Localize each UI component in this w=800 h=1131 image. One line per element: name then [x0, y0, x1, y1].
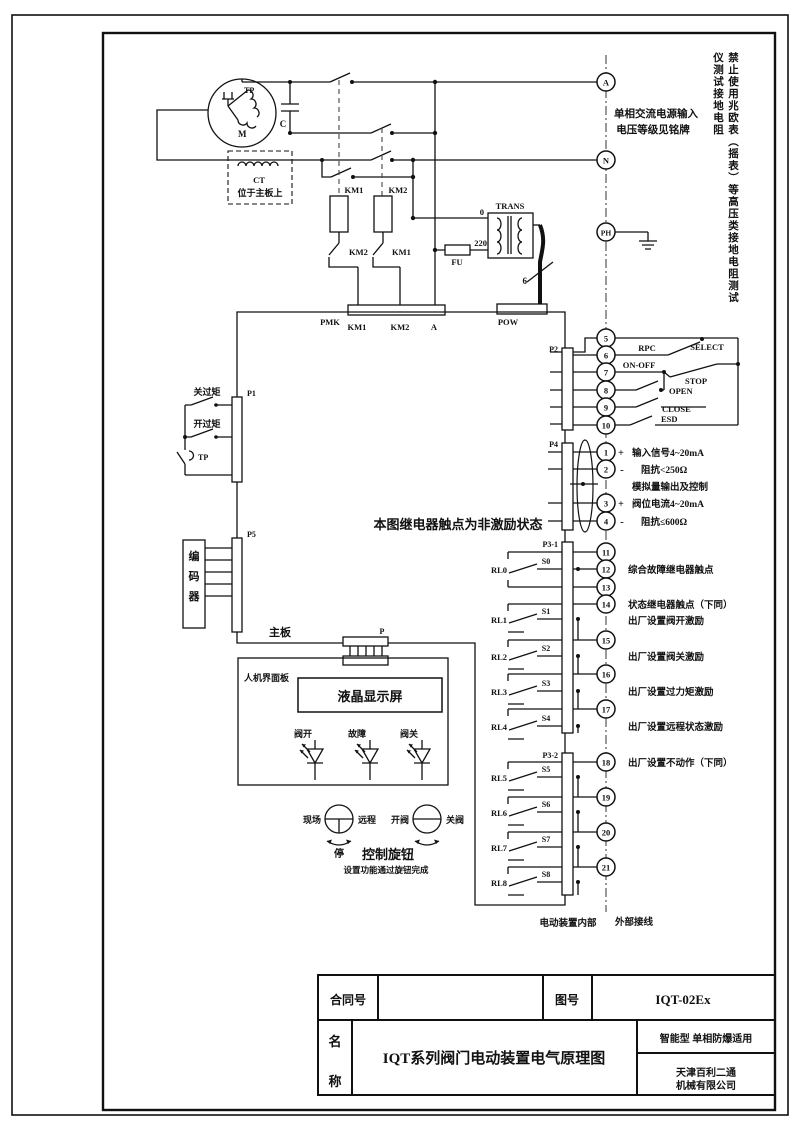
switch-s4: S4 — [542, 714, 550, 723]
p31-section: P3-1 RL0 S0 RL1 S1 RL2 S2 RL3 S3 RL4 S4 … — [491, 540, 733, 739]
note-remote-exc: 出厂设置远程状态激励 — [628, 721, 724, 733]
analog-note-5: 阻抗≤600Ω — [641, 516, 687, 528]
pmk-connector: PMK KM1 KM2 A — [320, 305, 445, 332]
led-close-label: 阀关 — [400, 728, 418, 739]
close-label: CLOSE — [662, 404, 691, 414]
zone-internal-label: 电动装置内部 — [539, 917, 597, 929]
minus-sign-1: - — [620, 464, 624, 476]
p2-label: P2 — [549, 345, 558, 354]
km2-interlock-label: KM1 — [392, 247, 411, 257]
analog-note-4: 阀位电流4~20mA — [632, 498, 704, 510]
pmk-pin-km1: KM1 — [348, 322, 367, 332]
analog-note-3: 模拟量输出及控制 — [632, 481, 709, 493]
relay-rl2: RL2 — [491, 652, 507, 662]
transformer-label: TRANS — [496, 201, 525, 211]
terminal-20: 20 — [602, 828, 611, 838]
cable-count-label: 6 — [523, 276, 528, 286]
p4-terminal-3: 3 — [604, 499, 608, 509]
knob2-right-label: 关阀 — [446, 814, 464, 825]
fuse-label: FU — [451, 257, 462, 267]
company-line1: 天津百利二通 — [676, 1066, 736, 1079]
p2-terminal-5: 5 — [604, 334, 608, 344]
relay-state-note: 本图继电器触点为非激励状态 — [373, 517, 542, 532]
outer-border — [12, 15, 788, 1115]
terminal-21: 21 — [602, 863, 611, 873]
power-note-line1: 单相交流电源输入 — [614, 107, 698, 120]
supply-terminals: A N PH 单相交流电源输入 电压等级见铭牌 — [597, 73, 698, 249]
hmi-panel-label: 人机界面板 — [243, 672, 290, 683]
note-no-action: 出厂设置不动作（下同） — [628, 757, 733, 769]
terminal-17: 17 — [602, 705, 611, 715]
encoder: 编 码 器 P5 — [183, 530, 256, 632]
p4-label: P4 — [549, 440, 558, 449]
switch-s2: S2 — [542, 644, 550, 653]
contactor-linkage-lines — [339, 80, 382, 196]
p1-label: P1 — [247, 389, 256, 398]
knob1-left-label: 现场 — [303, 814, 321, 825]
p2-terminal-10: 10 — [602, 421, 611, 431]
control-knobs: 现场 远程 停 开阀 关阀 控制旋钮 设置功能通过旋钮完成 — [303, 805, 464, 875]
p-connector: P — [343, 627, 388, 665]
note-status: 状态继电器触点（下同） — [628, 599, 733, 611]
note-fault: 综合故障继电器触点 — [628, 564, 714, 576]
p2-terminal-6: 6 — [604, 351, 608, 361]
grounding-warning-note: 禁止使用兆欧表（摇表）等高压类接地电阻测试仪测试接地电阻 — [710, 52, 740, 312]
knob2-left-label: 开阀 — [391, 814, 409, 825]
minus-sign-2: - — [620, 516, 624, 528]
drawing-no-value: IQT-02Ex — [655, 992, 711, 1007]
name-label-char1: 名 — [328, 1034, 341, 1049]
name-label-char2: 称 — [328, 1074, 341, 1089]
switch-s0: S0 — [542, 557, 550, 566]
fuse: FU — [435, 245, 488, 267]
company-line2: 机械有限公司 — [676, 1079, 736, 1092]
p2-terminal-8: 8 — [604, 386, 608, 396]
knob1-right-label: 远程 — [358, 814, 376, 825]
encoder-char-1: 编 — [189, 549, 200, 563]
terminal-13: 13 — [602, 583, 611, 593]
plus-sign-2: + — [618, 499, 624, 510]
schematic-drawing: TP M C CT 位于主板上 KM1 KM2 KM2 KM — [0, 0, 800, 1131]
note-close-exc: 出厂设置阀关激励 — [628, 651, 705, 663]
note-open-exc: 出厂设置阀开激励 — [628, 615, 705, 627]
switch-s6: S6 — [542, 800, 550, 809]
terminal-19: 19 — [602, 793, 611, 803]
relay-rl1: RL1 — [491, 615, 507, 625]
note-torque-exc: 出厂设置过力矩激励 — [628, 686, 714, 698]
switch-s1: S1 — [542, 607, 550, 616]
led-fault-label: 故障 — [348, 728, 366, 739]
capacitor-label: C — [280, 119, 287, 129]
tp-contact-label: TP — [198, 453, 208, 462]
power-note-line2: 电压等级见铭牌 — [616, 123, 690, 136]
knob-title: 控制旋钮 — [362, 847, 414, 862]
p2-section: P2 5 6 7 8 9 10 RPC SELECT ON-OFF STOP O… — [549, 329, 740, 434]
onoff-label: ON-OFF — [623, 360, 656, 370]
relay-rl3: RL3 — [491, 687, 507, 697]
terminal-n: N — [603, 156, 610, 166]
current-transformer: CT 位于主板上 — [228, 151, 292, 204]
contactor-km2: KM2 KM1 — [373, 185, 411, 305]
km1-interlock-label: KM2 — [349, 247, 368, 257]
esd-label: ESD — [661, 414, 678, 424]
ct-label: CT — [253, 175, 265, 185]
pmk-pin-a: A — [431, 322, 438, 332]
p31-label: P3-1 — [542, 540, 558, 549]
p-label: P — [380, 627, 385, 636]
terminal-11: 11 — [602, 548, 610, 558]
lcd-label: 液晶显示屏 — [337, 689, 402, 704]
tap-0-label: 0 — [480, 207, 484, 217]
terminal-15: 15 — [602, 636, 611, 646]
terminal-16: 16 — [602, 670, 611, 680]
p2-terminal-9: 9 — [604, 403, 608, 413]
knob-note: 设置功能通过旋钮完成 — [343, 865, 429, 875]
drawing-title: IQT系列阀门电动装置电气原理图 — [383, 1049, 606, 1067]
relay-rl6: RL6 — [491, 808, 507, 818]
relay-rl5: RL5 — [491, 773, 507, 783]
led-open-icon — [300, 740, 323, 780]
p4-terminal-2: 2 — [604, 465, 608, 475]
pow-label: POW — [498, 317, 519, 327]
motor-symbol: TP M — [208, 79, 276, 147]
switch-s7: S7 — [542, 835, 550, 844]
type-note: 智能型 单相防爆适用 — [660, 1032, 753, 1045]
switch-s5: S5 — [542, 765, 550, 774]
p4-terminal-1: 1 — [604, 448, 608, 458]
terminal-18: 18 — [602, 758, 611, 768]
select-label: SELECT — [690, 342, 724, 352]
drawing-no-label: 图号 — [555, 992, 579, 1007]
led-fault-icon — [355, 740, 378, 780]
p32-label: P3-2 — [542, 751, 558, 760]
open-torque-label: 开过矩 — [193, 418, 220, 429]
switch-s8: S8 — [542, 870, 550, 879]
rpc-label: RPC — [638, 343, 655, 353]
stop-label: STOP — [685, 376, 707, 386]
hmi-panel: 人机界面板 液晶显示屏 阀开 故障 阀关 — [238, 658, 448, 785]
led-open-label: 阀开 — [294, 728, 312, 739]
schematic-page: TP M C CT 位于主板上 KM1 KM2 KM2 KM — [0, 0, 800, 1131]
relay-rl4: RL4 — [491, 722, 508, 732]
motor-m-label: M — [238, 129, 247, 139]
knob1-below-label: 停 — [334, 847, 344, 860]
encoder-char-3: 器 — [188, 590, 201, 603]
plus-sign-1: + — [618, 448, 624, 459]
contactor-km1: KM1 KM2 — [329, 185, 368, 305]
p32-section: P3-2 RL5 S5 RL6 S6 RL7 S7 RL8 S8 18 19 2… — [491, 751, 733, 895]
pmk-pin-km2: KM2 — [391, 322, 410, 332]
analog-note-1: 输入信号4~20mA — [632, 447, 704, 459]
shield-symbol — [577, 440, 593, 532]
motor-tp-label: TP — [244, 86, 254, 95]
open-label: OPEN — [669, 386, 693, 396]
pmk-label: PMK — [320, 317, 340, 327]
p4-section: P4 1 2 3 4 + - + - 输入信号4~20mA 阻抗<250Ω 模拟… — [548, 440, 709, 532]
km1-coil-label: KM1 — [345, 185, 364, 195]
mainboard-label: 主板 — [269, 625, 292, 639]
relay-rl8: RL8 — [491, 878, 507, 888]
title-block: 合同号 图号 IQT-02Ex 名 称 IQT系列阀门电动装置电气原理图 智能型… — [318, 975, 775, 1095]
switch-s3: S3 — [542, 679, 550, 688]
tap-220-label: 220 — [474, 238, 487, 248]
power-wiring: C — [157, 73, 597, 305]
zone-external-label: 外部接线 — [614, 916, 654, 928]
relay-rl7: RL7 — [491, 843, 508, 853]
terminal-14: 14 — [602, 600, 611, 610]
close-torque-label: 关过矩 — [193, 386, 220, 397]
terminal-ph: PH — [601, 229, 612, 238]
contract-no-label: 合同号 — [330, 992, 366, 1007]
analog-note-2: 阻抗<250Ω — [641, 464, 688, 476]
terminal-a: A — [603, 78, 610, 88]
led-close-icon — [407, 740, 430, 780]
p1-connector: P1 关过矩 开过矩 TP — [177, 386, 256, 482]
pow-connector: POW — [497, 304, 547, 327]
p5-label: P5 — [247, 530, 256, 539]
transformer: TRANS 0 220 6 — [474, 201, 553, 304]
encoder-char-2: 码 — [189, 570, 200, 583]
terminal-12: 12 — [602, 565, 611, 575]
ct-location-label: 位于主板上 — [237, 187, 282, 198]
km2-coil-label: KM2 — [389, 185, 408, 195]
relay-rl0: RL0 — [491, 565, 507, 575]
